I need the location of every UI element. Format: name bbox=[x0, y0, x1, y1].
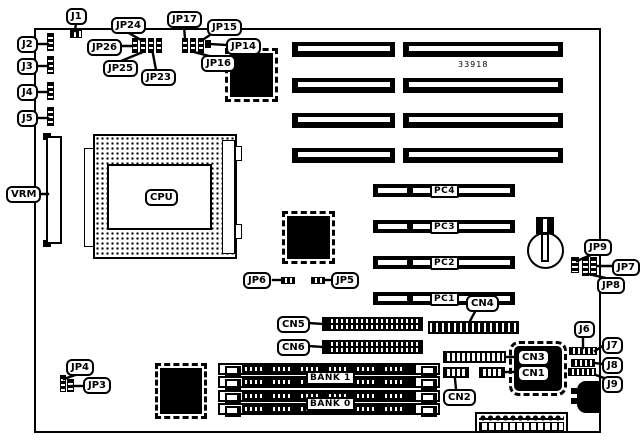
label-cn4: CN4 bbox=[466, 295, 499, 312]
jumper-jp25-block bbox=[148, 38, 154, 53]
isa-slot-3-long bbox=[403, 113, 563, 128]
label-bank1: BANK 1 bbox=[306, 371, 355, 385]
jumper-jp24-block bbox=[140, 38, 146, 53]
keyboard-connector-pin-a bbox=[571, 388, 577, 394]
label-j5: J5 bbox=[17, 110, 38, 127]
label-cn5: CN5 bbox=[277, 316, 310, 333]
label-j2: J2 bbox=[17, 36, 38, 53]
jumper-jp6-block bbox=[281, 277, 295, 284]
jumper-jp4-block bbox=[60, 375, 66, 392]
connector-cn5 bbox=[322, 317, 423, 331]
label-cn1: CN1 bbox=[517, 365, 550, 382]
battery-clip-slot bbox=[543, 219, 547, 232]
label-bank0: BANK 0 bbox=[306, 397, 355, 411]
connector-cn4 bbox=[428, 321, 519, 334]
header-j6 bbox=[569, 347, 597, 355]
label-j4: J4 bbox=[17, 84, 38, 101]
connector-cn6 bbox=[322, 340, 423, 354]
label-jp6: JP6 bbox=[243, 272, 271, 289]
label-j9: J9 bbox=[602, 376, 623, 393]
header-j7 bbox=[571, 359, 595, 367]
label-jp4: JP4 bbox=[66, 359, 94, 376]
jumper-jp17-block bbox=[182, 38, 188, 53]
isa-slot-2-long bbox=[403, 78, 563, 93]
label-jp26: JP26 bbox=[87, 39, 122, 56]
header-j3 bbox=[47, 56, 54, 74]
label-jp8: JP8 bbox=[597, 277, 625, 294]
label-j8: J8 bbox=[602, 357, 623, 374]
chip-qfp-middle bbox=[282, 211, 335, 264]
label-jp23: JP23 bbox=[141, 69, 176, 86]
isa-slot-3-short bbox=[292, 113, 395, 128]
label-jp16: JP16 bbox=[201, 55, 236, 72]
isa-slot-4-short bbox=[292, 148, 395, 163]
label-vrm: VRM bbox=[6, 186, 41, 203]
cpu-lever-tab-bottom bbox=[235, 224, 242, 239]
jumper-jp3-block bbox=[67, 379, 74, 392]
jumper-jp26-block bbox=[132, 38, 138, 53]
jumper-jp16-block bbox=[190, 38, 196, 53]
jumper-jp23-block bbox=[156, 38, 162, 53]
jumper-jp7-block bbox=[590, 257, 597, 276]
cpu-lever bbox=[222, 140, 235, 254]
vrm-socket bbox=[46, 136, 62, 244]
battery-clip-arm bbox=[541, 233, 549, 262]
label-j1: J1 bbox=[66, 8, 87, 25]
header-j4 bbox=[47, 82, 54, 100]
label-pc4: PC4 bbox=[430, 184, 459, 198]
label-j6: J6 bbox=[574, 321, 595, 338]
label-jp14: JP14 bbox=[226, 38, 261, 55]
cpu-lever-tab-top bbox=[235, 146, 242, 161]
connector-cn3 bbox=[443, 351, 506, 363]
label-pc1: PC1 bbox=[430, 292, 459, 306]
label-cpu: CPU bbox=[145, 189, 178, 206]
label-jp15: JP15 bbox=[207, 19, 242, 36]
jumper-jp15-block bbox=[198, 38, 204, 53]
label-jp24: JP24 bbox=[111, 17, 146, 34]
label-jp17: JP17 bbox=[167, 11, 202, 28]
label-cn6: CN6 bbox=[277, 339, 310, 356]
isa-slot-2-short bbox=[292, 78, 395, 93]
label-jp5: JP5 bbox=[331, 272, 359, 289]
header-j2 bbox=[47, 33, 54, 51]
label-jp7: JP7 bbox=[612, 259, 640, 276]
isa-slot-1-short bbox=[292, 42, 395, 57]
isa-slot-1-long bbox=[403, 42, 563, 57]
header-j8 bbox=[568, 368, 596, 376]
label-jp25: JP25 bbox=[103, 60, 138, 77]
label-jp3: JP3 bbox=[83, 377, 111, 394]
power-connector bbox=[475, 412, 568, 433]
label-pc2: PC2 bbox=[430, 256, 459, 270]
header-j5 bbox=[47, 107, 54, 126]
jumper-jp9-block bbox=[571, 257, 579, 273]
label-j3: J3 bbox=[17, 58, 38, 75]
board-part-number: 33918 bbox=[458, 60, 488, 69]
cpu-retention-left bbox=[84, 148, 94, 247]
label-cn2: CN2 bbox=[443, 389, 476, 406]
label-jp9: JP9 bbox=[584, 239, 612, 256]
connector-cn1 bbox=[479, 367, 505, 378]
label-j7: J7 bbox=[602, 337, 623, 354]
motherboard-diagram: 33918 PC4 PC3 PC2 PC1 CPU bbox=[0, 0, 640, 441]
jumper-jp14-block bbox=[205, 40, 211, 48]
keyboard-connector-j9 bbox=[577, 381, 601, 413]
label-cn3: CN3 bbox=[517, 349, 550, 366]
jumper-jp5-block bbox=[311, 277, 325, 284]
jumper-j1 bbox=[70, 30, 82, 38]
connector-cn2 bbox=[443, 367, 469, 378]
isa-slot-4-long bbox=[403, 148, 563, 163]
keyboard-connector-pin-b bbox=[571, 398, 577, 404]
label-pc3: PC3 bbox=[430, 220, 459, 234]
chip-qfp-bottom-left bbox=[155, 363, 207, 419]
jumper-jp8-block bbox=[582, 257, 589, 276]
